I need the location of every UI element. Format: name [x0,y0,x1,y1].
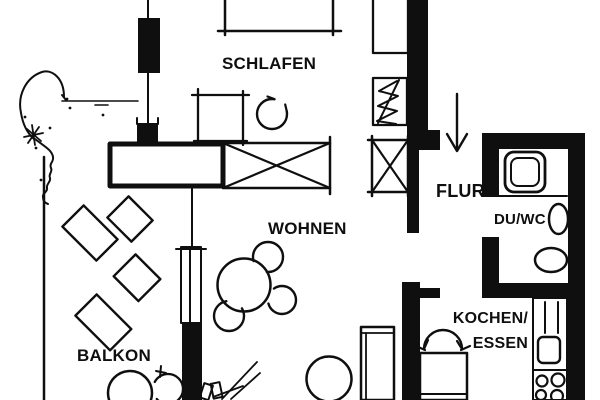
living-table [218,259,271,312]
plant-sketch [200,362,260,400]
room-label-balkon: BALKON [77,347,151,364]
stove [533,370,567,400]
toilet [535,248,567,272]
room-label-schlafen: SCHLAFEN [222,55,316,72]
dining-table [420,353,467,400]
kitchen-counter [533,298,567,370]
room-label-wohnen: WOHNEN [268,220,347,237]
room-label-kochen-essen: KOCHEN/ ESSEN [453,306,528,356]
french-door [176,247,206,323]
balcony-chair-arc [153,366,183,400]
room-label-kochen-line1: KOCHEN/ [453,310,528,327]
entrance-arrow [447,94,467,151]
lounger [62,196,160,350]
room-label-kochen-line2: ESSEN [473,335,528,352]
chair-arc [214,242,296,331]
floor-plan: SCHLAFEN WOHNEN BALKON FLUR DU/WC KOCHEN… [0,0,600,400]
balcony-table [108,371,152,400]
nightstand [192,89,249,146]
room-label-du-wc: DU/WC [494,212,546,227]
door-swing-arc-bedroom [257,97,287,130]
shower [499,152,567,196]
radiator [373,78,407,125]
window-crossed [223,137,330,194]
bed [218,0,341,35]
shaft-xbox [368,136,412,196]
wardrobe [373,0,408,53]
kitchen-cabinet [361,327,394,400]
sink [538,337,560,363]
washbasin [549,204,568,234]
kitchen-round-table [307,357,352,400]
sideboard [110,144,223,186]
room-label-flur: FLUR [436,182,485,200]
